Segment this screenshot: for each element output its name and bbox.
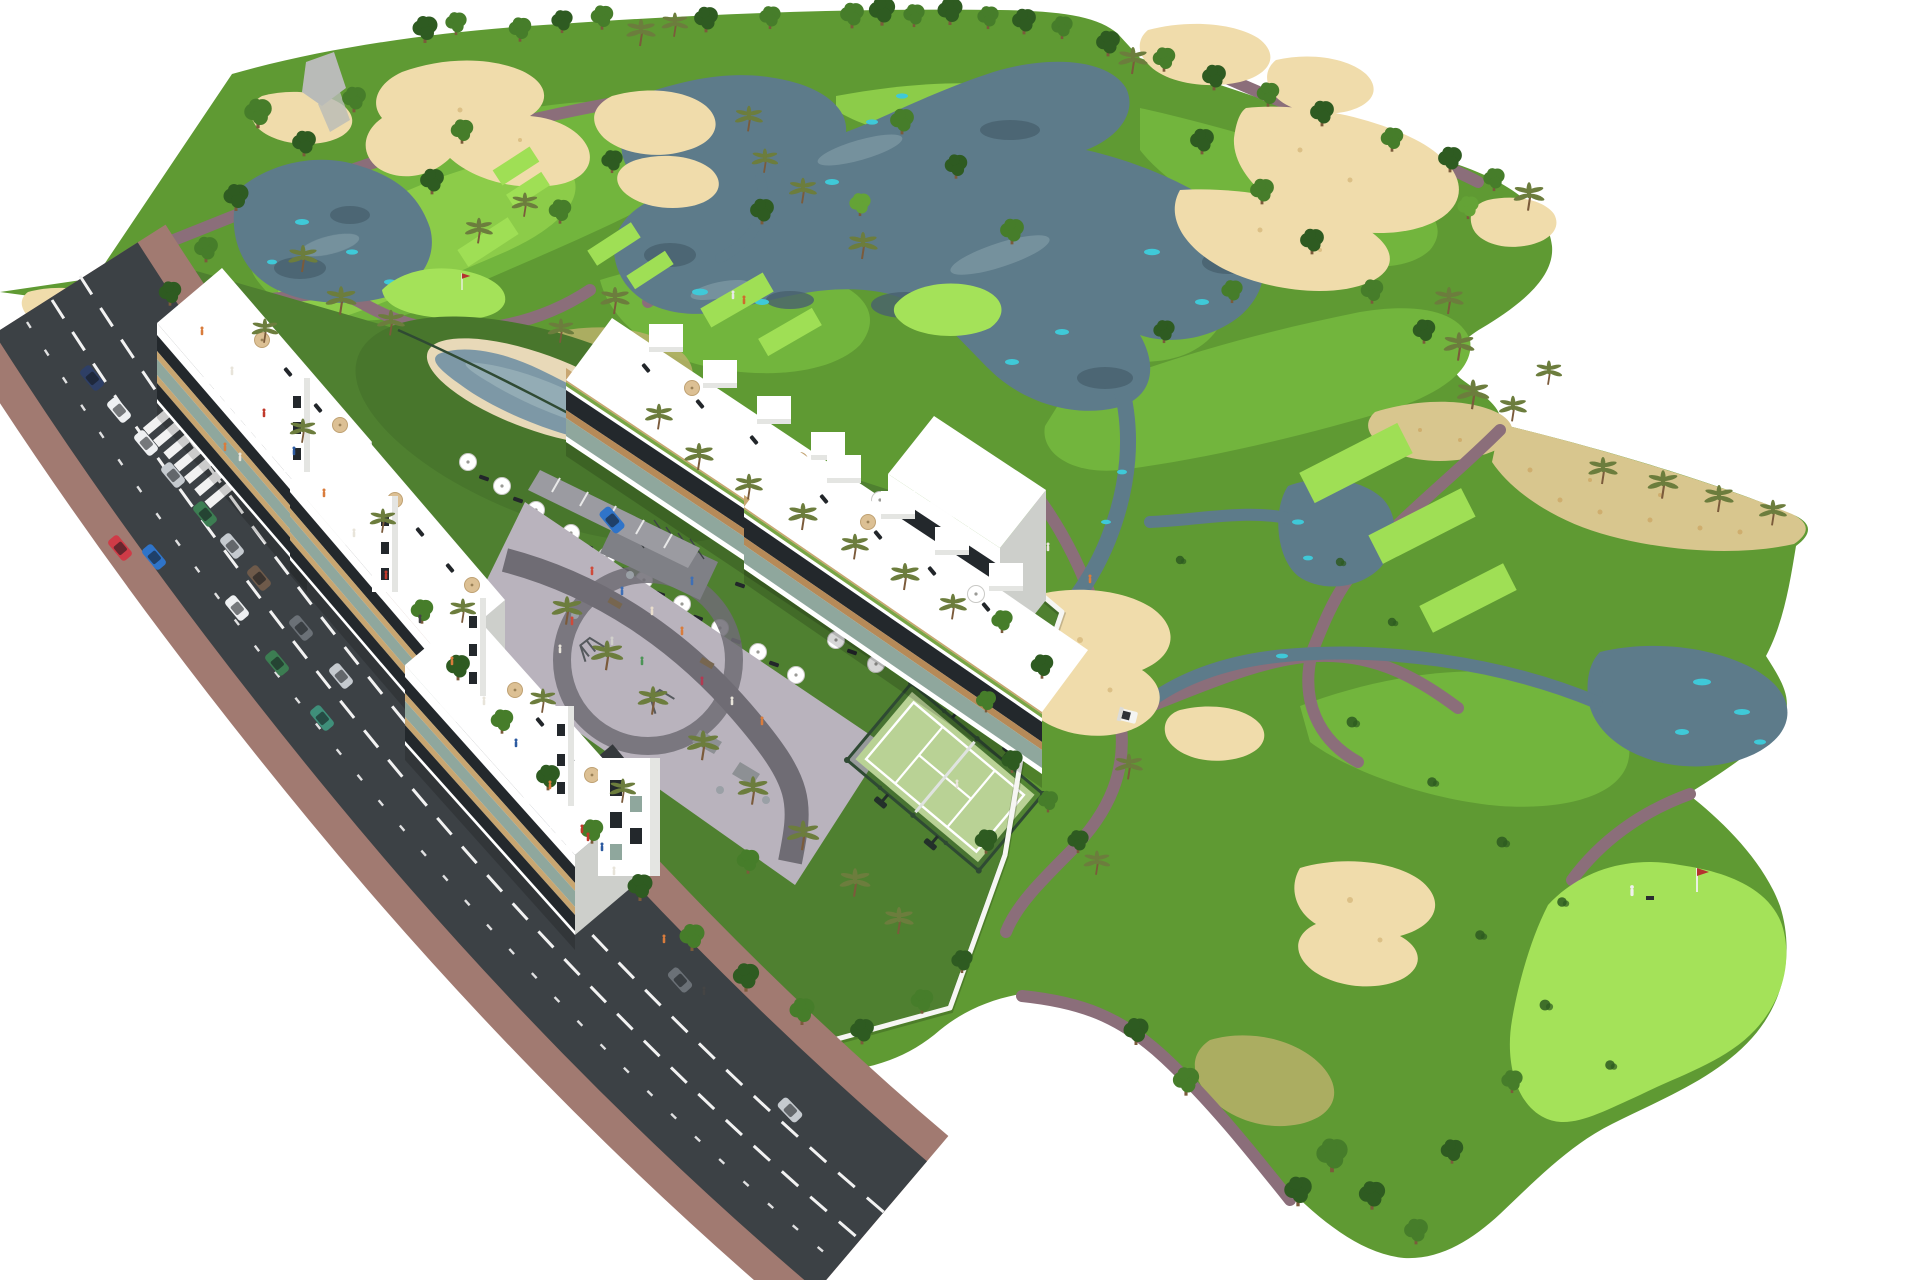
end-building <box>598 758 660 876</box>
stream-2 <box>1150 515 1296 522</box>
aerial-rendering <box>0 0 1920 1280</box>
rendering-canvas <box>0 0 1920 1280</box>
